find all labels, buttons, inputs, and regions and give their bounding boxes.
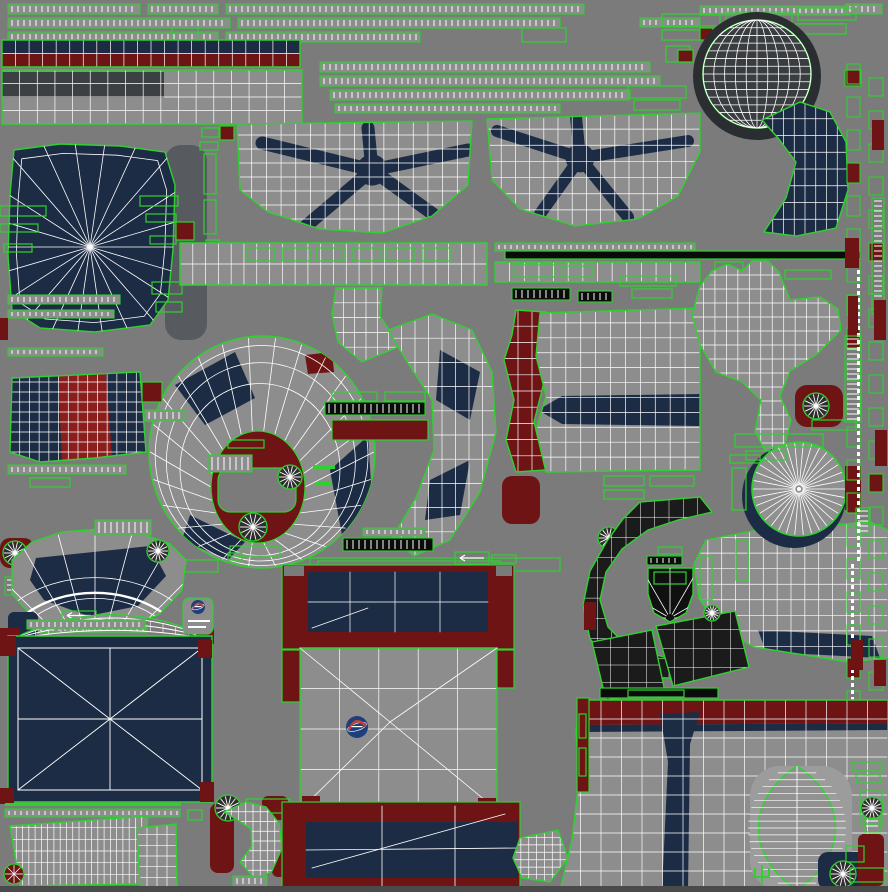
mid-grid-strip (180, 243, 487, 285)
uv-tick (95, 520, 151, 535)
uv-tick (5, 809, 180, 817)
uv-rect (874, 660, 886, 686)
uv-rect (632, 289, 672, 298)
uv-panel (137, 824, 177, 888)
uv-tick (208, 455, 252, 472)
uv-rect (198, 640, 212, 658)
uv-rect (785, 270, 831, 279)
uv-rect (313, 465, 335, 469)
radial-disc (752, 442, 846, 536)
uv-rect (385, 392, 425, 401)
uv-arrowbar (455, 552, 489, 564)
uv-star (704, 605, 720, 621)
uv-spokes (5, 865, 23, 883)
uv-rect (316, 482, 332, 485)
uv-rect (496, 566, 512, 576)
uv-rect (604, 490, 644, 499)
uv-rect (577, 698, 589, 792)
uv-rect (502, 476, 540, 524)
uv-tick (846, 4, 882, 14)
uv-rect (332, 420, 428, 440)
uv-map-stage (0, 0, 888, 892)
flag-panel (536, 308, 700, 472)
uv-meatball (191, 600, 205, 614)
uv-star (803, 393, 829, 419)
uv-tick (343, 538, 433, 551)
spider-panel-b (487, 113, 700, 226)
uv-tick (320, 62, 650, 72)
uv-rect (0, 788, 14, 804)
uv-tick (8, 348, 103, 356)
uv-tick (512, 288, 570, 300)
uv-rect (188, 810, 202, 820)
uv-rect (584, 602, 596, 630)
uv-rect (874, 300, 886, 340)
uv-tick (363, 528, 425, 536)
uv-star (278, 465, 302, 489)
uv-rect (848, 296, 858, 332)
uv-rect (604, 476, 644, 486)
tricolor-grid (10, 372, 146, 462)
uv-rect (142, 382, 162, 402)
uv-rect (200, 142, 218, 150)
uv-star (239, 513, 267, 541)
uv-tick (226, 4, 584, 14)
uv-tick (8, 18, 230, 28)
uv-rect (505, 251, 860, 259)
uv-rect (0, 886, 888, 892)
uv-tick (27, 620, 145, 629)
uv-tick (325, 402, 425, 415)
uv-star (861, 797, 883, 819)
uv-tick (335, 104, 560, 113)
uv-rect (858, 834, 884, 886)
uv-lines (18, 648, 202, 790)
uv-rect (845, 238, 859, 268)
uv-tick (320, 76, 660, 86)
uv-islands-layer (0, 4, 888, 892)
top-navy-red-band (2, 40, 300, 67)
uv-rect (872, 120, 884, 150)
uv-rect (202, 128, 219, 137)
top-left-grid-strip (2, 70, 302, 124)
uv-rect (658, 547, 682, 554)
uv-rect (200, 782, 214, 802)
spider-panel-a (237, 121, 472, 233)
uv-tick (495, 243, 695, 251)
uv-rect (0, 636, 16, 656)
uv-rect (30, 478, 70, 487)
uv-panel (332, 288, 400, 362)
uv-rect (5, 803, 181, 806)
uv-texture-map (0, 0, 888, 892)
uv-rect (650, 476, 694, 486)
small-fan (513, 830, 568, 882)
uv-rect (678, 50, 693, 62)
uv-tick (330, 90, 630, 100)
bottom-fan (10, 816, 148, 886)
uv-tick (8, 4, 140, 14)
hand-island (692, 261, 841, 457)
uv-tick (700, 6, 850, 15)
uv-rect (220, 126, 234, 140)
uv-rect (282, 650, 300, 702)
uv-rect (497, 650, 514, 688)
uv-tick (8, 295, 120, 304)
uv-rect (188, 626, 206, 628)
navy-wing (762, 102, 848, 236)
uv-star (147, 540, 169, 562)
uv-tick (148, 4, 218, 14)
uv-rect (875, 430, 887, 466)
uv-tick (238, 18, 560, 28)
uv-rect (628, 86, 686, 98)
uv-tick (578, 291, 612, 302)
uv-tick (233, 876, 267, 886)
uv-tick (145, 410, 185, 421)
uv-tick (647, 556, 682, 565)
uv-ladder (845, 336, 861, 422)
uv-rect (176, 222, 194, 240)
uv-rect (634, 100, 680, 110)
uv-rect (851, 640, 863, 670)
uv-tick (8, 310, 114, 318)
uv-star (830, 861, 856, 887)
uv-rect (188, 620, 210, 622)
uv-rect (522, 28, 566, 42)
uv-rect (492, 555, 516, 563)
uv-tick (8, 465, 126, 474)
uv-rect (284, 566, 304, 576)
uv-rect (0, 318, 8, 340)
nasa-meatball (346, 716, 368, 738)
